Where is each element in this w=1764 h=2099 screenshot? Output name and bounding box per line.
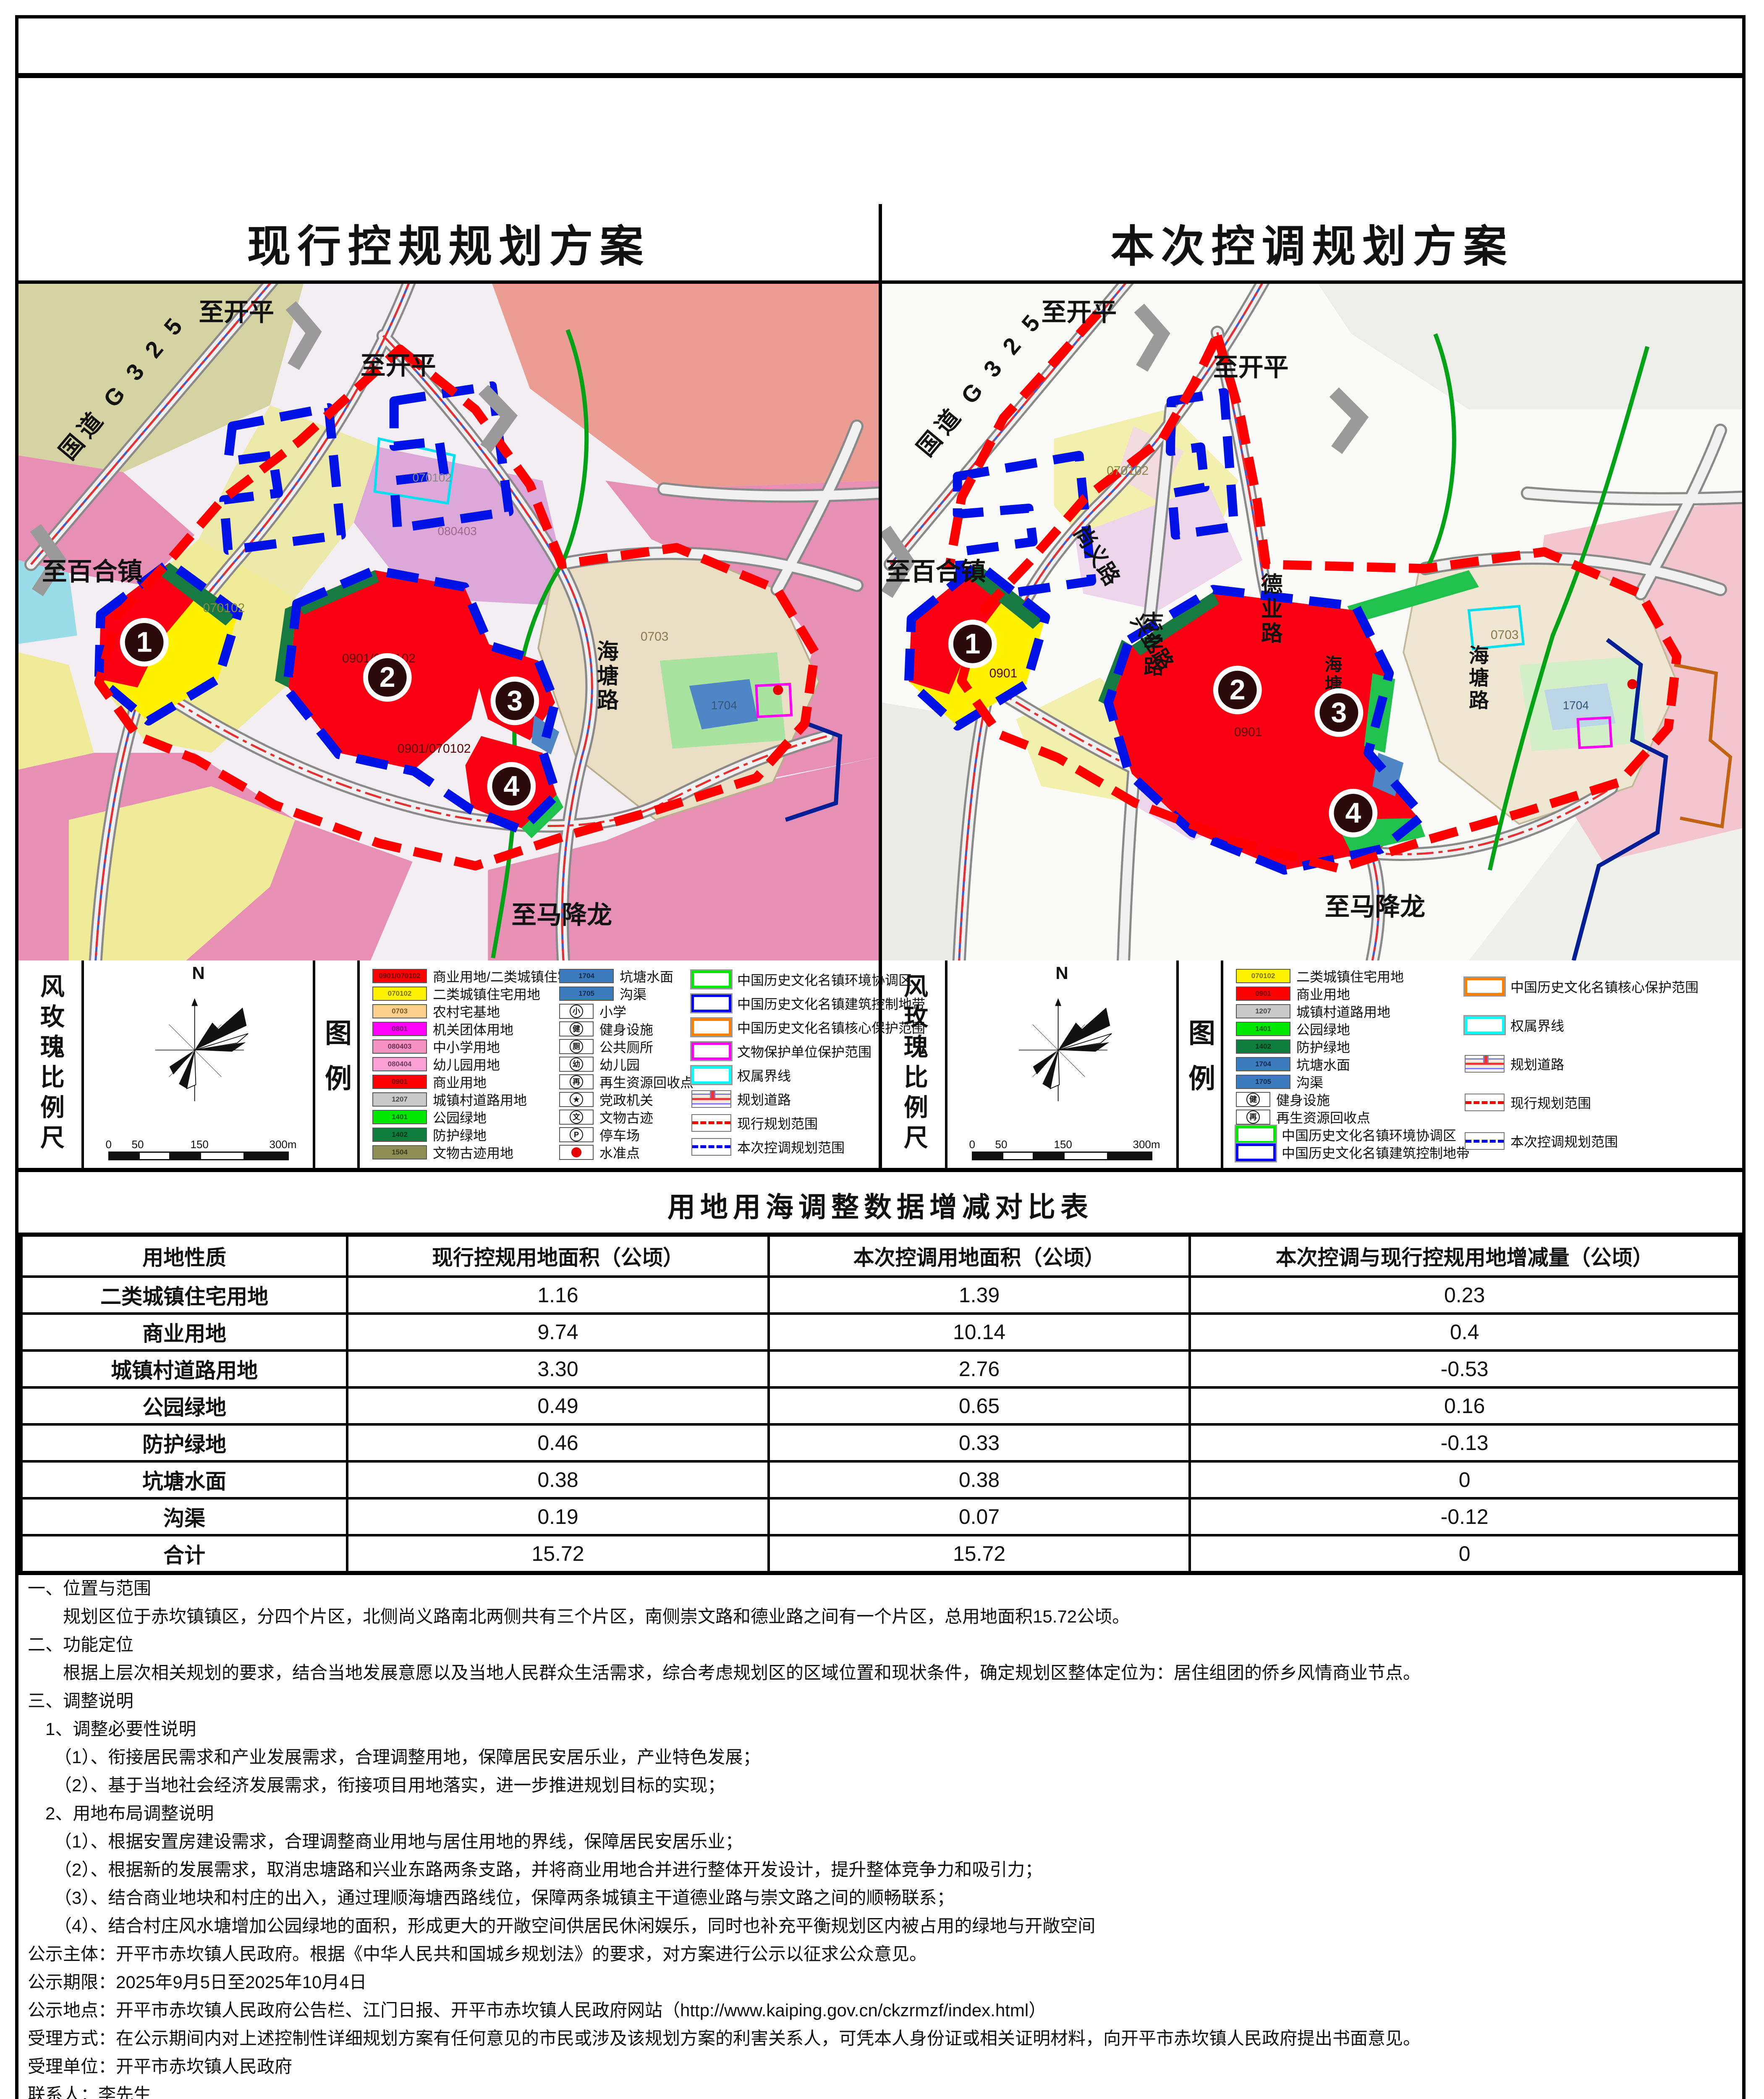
- planned-road-icon: [691, 1090, 731, 1108]
- legend-outline-swatch: [1465, 1016, 1505, 1034]
- table-row: 城镇村道路用地3.302.76-0.53: [21, 1350, 1740, 1387]
- map-label: 070102: [1107, 464, 1149, 478]
- legend-code: 0901: [1255, 989, 1271, 998]
- legend-item-label: 文物古迹用地: [433, 1143, 513, 1162]
- note-line: （2）、基于当地社会经济发展需求，衔接项目用地落实，进一步推进规划目标的实现；: [28, 1771, 1733, 1799]
- legend-code: 1704: [1255, 1060, 1271, 1068]
- legend-item: 1704坑塘水面: [1236, 1055, 1465, 1073]
- legend-swatch-0901: 0901: [372, 1075, 427, 1089]
- legend-item: 1402防护绿地: [1236, 1038, 1465, 1055]
- legend-item: P停车场: [559, 1126, 691, 1144]
- table-row: 沟渠0.190.07-0.12: [21, 1498, 1740, 1535]
- north-label: N: [1055, 963, 1068, 983]
- legend-item: 现行规划范围: [691, 1111, 901, 1135]
- legend-item-label: 小学: [599, 1002, 626, 1021]
- legend-item-label: 文物古迹: [599, 1107, 653, 1127]
- table-cell: 2.76: [769, 1350, 1190, 1387]
- legend-item: 再再生资源回收点: [559, 1073, 691, 1091]
- note-line: 根据上层次相关规划的要求，结合当地发展意愿以及当地人民群众生活需求，综合考虑规划…: [28, 1659, 1733, 1687]
- symbol-icon: 健: [1246, 1093, 1260, 1106]
- legend-item: 权属界线: [691, 1063, 901, 1087]
- legend-code: 0801: [392, 1025, 408, 1033]
- legend-item: 现行规划范围: [1465, 1083, 1742, 1122]
- table-header-cell: 现行控规用地面积（公顷）: [347, 1235, 769, 1277]
- legend-swatch-0901/070102: 0901/070102: [372, 969, 427, 983]
- symbol-icon: 再: [1246, 1110, 1260, 1124]
- legend-swatch-1402: 1402: [372, 1128, 427, 1142]
- legend-item-label: 二类城镇住宅用地: [1296, 966, 1404, 986]
- table-title: 用地用海调整数据增减对比表: [18, 1185, 1742, 1225]
- legend-outline-swatch: [1236, 1144, 1276, 1161]
- map-label: 至百合镇: [885, 557, 986, 586]
- map-marker-1: 1: [120, 618, 169, 667]
- svg-text:1: 1: [136, 626, 152, 658]
- note-line: （4）、结合村庄风水塘增加公园绿地的面积，形成更大的开敞空间供居民休闲娱乐，同时…: [28, 1912, 1733, 1940]
- map-current-plan: 至开平至开平国道 G 3 2 5至百合镇至马降龙海塘路0701020901/07…: [18, 284, 879, 961]
- scale-tick: 300m: [1133, 1138, 1160, 1151]
- legend-column: 中国历史文化名镇核心保护范围权属界线规划道路现行规划范围本次控调规划范围: [1465, 967, 1742, 1168]
- symbol-icon: 健: [570, 1022, 583, 1036]
- table-row: 防护绿地0.460.33-0.13: [21, 1424, 1740, 1461]
- legend-swatch-1704: 1704: [559, 969, 614, 983]
- legend-item-label: 中国历史文化名镇环境协调区: [1282, 1125, 1456, 1144]
- legend-outline-swatch: [1465, 978, 1505, 995]
- legend-item-label: 公园绿地: [433, 1107, 487, 1127]
- table-cell: 公园绿地: [21, 1387, 347, 1424]
- legend-swatch-070102: 070102: [372, 987, 427, 1001]
- legend-column: 0901/070102商业用地/二类城镇住宅用地070102二类城镇住宅用地07…: [372, 967, 559, 1168]
- note-line: 二、功能定位: [28, 1631, 1733, 1659]
- legend-item-label: 权属界线: [1510, 1015, 1564, 1035]
- legend-label-cell: 图例: [1179, 961, 1223, 1168]
- legend-item: 本次控调规划范围: [691, 1135, 901, 1159]
- scale-bar: 0 50 150 300m: [108, 1138, 289, 1160]
- legend-code: 070102: [388, 989, 412, 998]
- legend-item: 健健身设施: [559, 1020, 691, 1038]
- legend-item: 070102二类城镇住宅用地: [372, 985, 559, 1002]
- page-title: 开平市赤坎镇赤坎新区南部组团一期控制性详细规划: [18, 87, 1742, 150]
- map-label: 0703: [1491, 628, 1519, 642]
- legend-items-right: 070102二类城镇住宅用地0901商业用地1207城镇村道路用地1401公园绿…: [1223, 961, 1742, 1168]
- map-label: 海塘路: [1469, 645, 1489, 712]
- legend-code: 1401: [1255, 1025, 1271, 1033]
- legend-swatch-1401: 1401: [1236, 1022, 1290, 1036]
- legend-icon-党政机关: ★: [559, 1092, 594, 1107]
- legend-code: 1705: [1255, 1078, 1271, 1086]
- wind-rose-scale-label: 风玫瑰比例尺: [896, 974, 931, 1155]
- wind-rose-cell: N 0 50: [84, 961, 315, 1168]
- legend-item: 080403中小学用地: [372, 1038, 559, 1055]
- legend-column: 1704坑塘水面1705沟渠小小学健健身设施厕公共厕所幼幼儿园再再生资源回收点★…: [559, 967, 691, 1168]
- legend-code: 1504: [392, 1148, 408, 1157]
- legend-dash-swatch: [1465, 1132, 1505, 1150]
- legend-item-label: 商业用地: [1296, 984, 1350, 1003]
- legend-outline-swatch: [691, 995, 731, 1012]
- legend-item: 中国历史文化名镇建筑控制地带: [691, 991, 901, 1015]
- legend-icon-公共厕所: 厕: [559, 1039, 594, 1054]
- table-cell: 0: [1190, 1461, 1740, 1498]
- svg-text:3: 3: [507, 685, 523, 717]
- page-subtitle: ——局部（沙地村周边地块）调整: [18, 154, 1742, 202]
- scale-bar-segments: [108, 1152, 289, 1160]
- legend-item: 1705沟渠: [559, 985, 691, 1002]
- legend-icon-再生资源回收点: 再: [1236, 1110, 1270, 1125]
- legend-item: 文文物古迹: [559, 1108, 691, 1126]
- map-adjusted-plan: 至开平至开平国道 G 3 2 5至百合镇至马降龙尚义路志学路德业路兴业路海塘西路…: [882, 284, 1742, 961]
- note-line: 三、调整说明: [28, 1687, 1733, 1715]
- symbol-icon: 厕: [570, 1040, 583, 1053]
- table-row: 公园绿地0.490.650.16: [21, 1387, 1740, 1424]
- table-row: 坑塘水面0.380.380: [21, 1461, 1740, 1498]
- table-cell: 0.65: [769, 1387, 1190, 1424]
- legend-item-label: 权属界线: [737, 1065, 791, 1085]
- note-line: 2、用地布局调整说明: [28, 1799, 1733, 1827]
- legend-item: 规划道路: [691, 1087, 901, 1111]
- map-label: 至马降龙: [1324, 892, 1425, 921]
- svg-text:1: 1: [965, 628, 981, 660]
- legend-swatch-1401: 1401: [372, 1110, 427, 1124]
- legend-code: 1402: [392, 1131, 408, 1139]
- wind-rose: [129, 983, 268, 1109]
- symbol-icon: 幼: [570, 1057, 583, 1071]
- table-header-cell: 用地性质: [21, 1235, 347, 1277]
- legend-item-label: 再生资源回收点: [1276, 1107, 1370, 1127]
- symbol-icon: ★: [570, 1093, 583, 1106]
- legend-item-label: 幼儿园用地: [433, 1055, 500, 1074]
- dash-line: [692, 1145, 730, 1148]
- legend-item: ★党政机关: [559, 1091, 691, 1108]
- legend-item: 0901商业用地: [1236, 985, 1465, 1002]
- legend-swatch-1402: 1402: [1236, 1039, 1290, 1054]
- scale-tick: 50: [132, 1138, 144, 1151]
- legend-item: 1207城镇村道路用地: [1236, 1002, 1465, 1020]
- legend-item-label: 文物保护单位保护范围: [737, 1042, 872, 1061]
- poster-sheet: 开平市赤坎镇赤坎新区南部组团一期控制性详细规划 ——局部（沙地村周边地块）调整 …: [15, 15, 1746, 2099]
- legend-item: 权属界线: [1465, 1006, 1742, 1044]
- legend-item: 0801机关团体用地: [372, 1020, 559, 1038]
- road-stub: [710, 1091, 715, 1098]
- symbol-icon: 文: [570, 1110, 583, 1124]
- legend-item-label: 现行规划范围: [737, 1113, 818, 1133]
- map-panel-adjusted: 至开平至开平国道 G 3 2 5至百合镇至马降龙尚义路志学路德业路兴业路海塘西路…: [882, 284, 1742, 961]
- wind-rose-scale-label: 风玫瑰比例尺: [32, 974, 68, 1155]
- legend-item-label: 中小学用地: [433, 1037, 500, 1056]
- note-line: 受理方式：在公示期间内对上述控制性详细规划方案有任何意见的市民或涉及该规划方案的…: [28, 2024, 1733, 2052]
- legend-item: 1207城镇村道路用地: [372, 1091, 559, 1108]
- wind-rose-scale-label-cell: 风玫瑰比例尺: [18, 961, 84, 1168]
- map-label: 070102: [203, 601, 245, 615]
- scale-bar-segments: [972, 1152, 1152, 1160]
- svg-text:4: 4: [1345, 797, 1361, 829]
- map-marker-3: 3: [490, 677, 539, 725]
- map-label: 海塘路: [597, 639, 619, 712]
- note-line: 公示主体：开平市赤坎镇人民政府。根据《中华人民共和国城乡规划法》的要求，对方案进…: [28, 1940, 1733, 1968]
- legend-swatch-1704: 1704: [1236, 1057, 1290, 1071]
- note-line: 公示地点：开平市赤坎镇人民政府公告栏、江门日报、开平市赤坎镇人民政府网站（htt…: [28, 1996, 1733, 2024]
- legend-swatch-1705: 1705: [559, 987, 614, 1001]
- legend-swatch-0801: 0801: [372, 1022, 427, 1036]
- svg-text:3: 3: [1331, 697, 1347, 728]
- legend-item-label: 本次控调规划范围: [1510, 1131, 1618, 1151]
- scale-ticks: 0 50 150 300m: [108, 1138, 289, 1152]
- table-cell: 0.16: [1190, 1387, 1740, 1424]
- map-label: 070102: [413, 471, 452, 484]
- legend-icon-健身设施: 健: [1236, 1092, 1270, 1107]
- legend-item-label: 现行规划范围: [1510, 1093, 1591, 1112]
- legend-item-label: 中国历史文化名镇建筑控制地带: [1282, 1143, 1470, 1162]
- legend-item: 0901/070102商业用地/二类城镇住宅用地: [372, 967, 559, 985]
- table-cell: 0.33: [769, 1424, 1190, 1461]
- legend-item-label: 沟渠: [1296, 1072, 1323, 1091]
- map-label: 0901: [1234, 725, 1262, 739]
- legend-swatch-070102: 070102: [1236, 969, 1290, 983]
- legend-swatch-080403: 080403: [372, 1039, 427, 1054]
- legend-outline-swatch: [691, 971, 731, 988]
- panel-title-current: 现行控规规划方案: [18, 204, 882, 280]
- legend-dash-swatch: [691, 1138, 731, 1156]
- legend-item: 中国历史文化名镇核心保护范围: [1465, 967, 1742, 1006]
- symbol-icon: 小: [570, 1005, 583, 1018]
- legend-code: 1705: [578, 989, 594, 998]
- note-line: 受理单位：开平市赤坎镇人民政府: [28, 2052, 1733, 2081]
- legend-code: 080403: [388, 1042, 412, 1051]
- legend-item: 文物保护单位保护范围: [691, 1039, 901, 1063]
- table-cell: 0.38: [347, 1461, 769, 1498]
- road-stub: [1483, 1056, 1489, 1063]
- legend-dash-swatch: [1465, 1094, 1505, 1111]
- legend-block-right: 风玫瑰比例尺 N: [882, 961, 1742, 1168]
- scale-tick: 150: [1054, 1138, 1072, 1151]
- legend-icon-健身设施: 健: [559, 1021, 594, 1036]
- legend-outline-swatch: [691, 1066, 731, 1084]
- legend-swatch-0901: 0901: [1236, 987, 1290, 1001]
- legend-item: 中国历史文化名镇建筑控制地带: [1236, 1144, 1465, 1161]
- table-cell: 商业用地: [21, 1314, 347, 1350]
- legend-item-label: 机关团体用地: [433, 1019, 513, 1039]
- legend-outline-swatch: [1236, 1126, 1276, 1144]
- legend-item: 1401公园绿地: [372, 1108, 559, 1126]
- scale-bar: 0 50 150 300m: [972, 1138, 1152, 1160]
- legend-code: 1402: [1255, 1042, 1271, 1051]
- legend-item-label: 城镇村道路用地: [1296, 1002, 1390, 1021]
- legend-outline-swatch: [691, 1042, 731, 1060]
- map-panel-current: 至开平至开平国道 G 3 2 5至百合镇至马降龙海塘路0701020901/07…: [18, 284, 882, 961]
- table-cell: 15.72: [769, 1535, 1190, 1573]
- legend-item: 规划道路: [1465, 1044, 1742, 1083]
- map-label: 至开平: [1213, 353, 1289, 381]
- legend-item-label: 二类城镇住宅用地: [433, 984, 540, 1003]
- legend-icon-停车场: P: [559, 1127, 594, 1142]
- table-cell: 0.49: [347, 1387, 769, 1424]
- benchmark-point: [1627, 679, 1637, 689]
- legend-item: 1504文物古迹用地: [372, 1144, 559, 1161]
- legend-code: 1704: [578, 972, 594, 980]
- table-row: 商业用地9.7410.140.4: [21, 1314, 1740, 1350]
- note-line: （3）、结合商业地块和村庄的出入，通过理顺海塘西路线位，保障两条城镇主干道德业路…: [28, 1884, 1733, 1912]
- legend-row: 风玫瑰比例尺 N: [18, 961, 1742, 1172]
- table-row: 二类城镇住宅用地1.161.390.23: [21, 1277, 1740, 1314]
- scale-tick: 50: [995, 1138, 1008, 1151]
- red-dot-icon: [571, 1147, 581, 1157]
- legend-item-label: 坑塘水面: [1296, 1055, 1350, 1074]
- table-cell: 0: [1190, 1535, 1740, 1573]
- table-cell: 1.39: [769, 1277, 1190, 1314]
- legend-item: 本次控调规划范围: [1465, 1122, 1742, 1160]
- legend-outline-swatch: [691, 1018, 731, 1036]
- map-label: 080403: [438, 525, 477, 538]
- legend-item: 中国历史文化名镇环境协调区: [1236, 1126, 1465, 1144]
- legend-item: 中国历史文化名镇核心保护范围: [691, 1015, 901, 1039]
- map-label: 0901: [989, 667, 1018, 680]
- legend-code: 1401: [392, 1113, 408, 1121]
- note-line: （1）、衔接居民需求和产业发展需求，合理调整用地，保障居民安居乐业，产业特色发展…: [28, 1743, 1733, 1771]
- legend-items-left: 0901/070102商业用地/二类城镇住宅用地070102二类城镇住宅用地07…: [360, 961, 879, 1168]
- table-cell: 坑塘水面: [21, 1461, 347, 1498]
- legend-code: 1207: [1255, 1007, 1271, 1015]
- legend-item-label: 防护绿地: [1296, 1037, 1350, 1056]
- scale-tick: 0: [106, 1138, 112, 1151]
- table-wrap: 用地性质现行控规用地面积（公顷）本次控调用地面积（公顷）本次控调与现行控规用地增…: [18, 1233, 1742, 1575]
- svg-text:2: 2: [379, 662, 395, 693]
- table-cell: 10.14: [769, 1314, 1190, 1350]
- legend-item-label: 城镇村道路用地: [433, 1090, 527, 1109]
- legend-icon-文物古迹: 文: [559, 1110, 594, 1125]
- legend-item: 再再生资源回收点: [1236, 1108, 1465, 1126]
- map-marker-4: 4: [1329, 789, 1377, 838]
- note-line: 联系人：李先生: [28, 2081, 1733, 2099]
- map-label: 至开平: [361, 351, 436, 379]
- legend-dash-swatch: [691, 1114, 731, 1132]
- scale-tick: 150: [191, 1138, 209, 1151]
- legend-item-label: 农村宅基地: [433, 1002, 500, 1021]
- symbol-icon: P: [570, 1128, 583, 1141]
- table-cell: 0.19: [347, 1498, 769, 1535]
- table-cell: -0.53: [1190, 1350, 1740, 1387]
- legend-item: 1402防护绿地: [372, 1126, 559, 1144]
- legend-item-label: 防护绿地: [433, 1125, 487, 1144]
- legend-item-label: 健身设施: [599, 1019, 653, 1039]
- map-marker-4: 4: [487, 762, 536, 811]
- dash-line: [692, 1121, 730, 1124]
- table-row: 合计15.7215.720: [21, 1535, 1740, 1573]
- legend-label: 图例: [317, 1019, 356, 1110]
- legend-item: 健健身设施: [1236, 1091, 1465, 1108]
- map-marker-2: 2: [1213, 666, 1262, 714]
- table-cell: 0.38: [769, 1461, 1190, 1498]
- legend-block-left: 风玫瑰比例尺 N: [18, 961, 882, 1168]
- legend-item-label: 中国历史文化名镇核心保护范围: [1510, 977, 1699, 996]
- note-line: 公示期限：2025年9月5日至2025年10月4日: [28, 1968, 1733, 1996]
- legend-item: 小小学: [559, 1002, 691, 1020]
- legend-code: 0901/070102: [379, 972, 420, 980]
- scale-tick: 0: [969, 1138, 975, 1151]
- legend-item: 1705沟渠: [1236, 1073, 1465, 1091]
- note-line: （1）、根据安置房建设需求，合理调整商业用地与居住用地的界线，保障居民安居乐业；: [28, 1827, 1733, 1856]
- legend-item-label: 沟渠: [620, 984, 646, 1003]
- map-label: 0703: [641, 630, 669, 644]
- svg-text:4: 4: [503, 771, 519, 802]
- benchmark-point: [773, 685, 783, 695]
- legend-item: 080404幼儿园用地: [372, 1055, 559, 1073]
- comparison-table: 用地性质现行控规用地面积（公顷）本次控调用地面积（公顷）本次控调与现行控规用地增…: [18, 1233, 1742, 1575]
- map-label: 至开平: [1041, 298, 1117, 326]
- table-cell: -0.13: [1190, 1424, 1740, 1461]
- dash-line: [1466, 1140, 1504, 1143]
- legend-label-cell: 图例: [315, 961, 360, 1168]
- map-marker-2: 2: [363, 653, 412, 702]
- map-row: 至开平至开平国道 G 3 2 5至百合镇至马降龙海塘路0701020901/07…: [18, 284, 1742, 961]
- legend-item: 0901商业用地: [372, 1073, 559, 1091]
- legend-item-label: 公共厕所: [599, 1037, 653, 1056]
- table-header-cell: 本次控调用地面积（公顷）: [769, 1235, 1190, 1277]
- map-label: 1704: [711, 699, 737, 712]
- legend-item: 1401公园绿地: [1236, 1020, 1465, 1038]
- legend-benchmark-icon: [559, 1145, 594, 1160]
- legend-item-label: 商业用地: [433, 1072, 487, 1091]
- map-marker-1: 1: [948, 620, 997, 668]
- legend-column: 中国历史文化名镇环境协调区中国历史文化名镇建筑控制地带中国历史文化名镇核心保护范…: [691, 967, 901, 1168]
- table-cell: 15.72: [347, 1535, 769, 1573]
- legend-item-label: 公园绿地: [1296, 1019, 1350, 1039]
- svg-text:2: 2: [1230, 674, 1246, 706]
- legend-item-label: 本次控调规划范围: [737, 1137, 845, 1157]
- legend-item-label: 党政机关: [599, 1090, 653, 1109]
- map-marker-3: 3: [1314, 688, 1363, 737]
- legend-item: 1704坑塘水面: [559, 967, 691, 985]
- legend-swatch-0703: 0703: [372, 1004, 427, 1018]
- legend-item: 中国历史文化名镇环境协调区: [691, 967, 901, 991]
- legend-item: 0703农村宅基地: [372, 1002, 559, 1020]
- legend-item: 厕公共厕所: [559, 1038, 691, 1055]
- symbol-icon: 再: [570, 1075, 583, 1089]
- legend-swatch-1207: 1207: [1236, 1004, 1290, 1018]
- legend-item-label: 幼儿园: [599, 1055, 640, 1074]
- legend-item-label: 水准点: [599, 1143, 640, 1162]
- map-label: 至马降龙: [511, 901, 612, 929]
- planned-road-icon: [1465, 1055, 1505, 1073]
- legend-icon-再生资源回收点: 再: [559, 1074, 594, 1089]
- wind-rose: [993, 983, 1131, 1109]
- legend-item-label: 坑塘水面: [620, 966, 673, 986]
- legend-code: 080404: [388, 1060, 412, 1068]
- legend-swatch-1504: 1504: [372, 1145, 427, 1159]
- map-label: 德业路: [1261, 572, 1283, 645]
- table-cell: 城镇村道路用地: [21, 1350, 347, 1387]
- legend-item-label: 规划道路: [1510, 1054, 1564, 1073]
- note-line: 规划区位于赤坎镇镇区，分四个片区，北侧尚义路南北两侧共有三个片区，南侧崇文路和德…: [28, 1602, 1733, 1631]
- map-label: 至开平: [199, 298, 274, 326]
- table-cell: 0.07: [769, 1498, 1190, 1535]
- legend-item: 水准点: [559, 1144, 691, 1161]
- table-cell: 二类城镇住宅用地: [21, 1277, 347, 1314]
- north-label: N: [192, 963, 204, 983]
- legend-item: 070102二类城镇住宅用地: [1236, 967, 1465, 985]
- table-cell: 3.30: [347, 1350, 769, 1387]
- table-cell: 0.23: [1190, 1277, 1740, 1314]
- legend-item-label: 规划道路: [737, 1089, 791, 1109]
- wind-rose-cell: N 0 50: [947, 961, 1179, 1168]
- table-cell: 0.4: [1190, 1314, 1740, 1350]
- legend-code: 070102: [1251, 972, 1275, 980]
- legend-item-label: 再生资源回收点: [599, 1072, 694, 1091]
- note-line: 1、调整必要性说明: [28, 1715, 1733, 1743]
- dash-line: [1466, 1101, 1504, 1104]
- title-banner: 开平市赤坎镇赤坎新区南部组团一期控制性详细规划 ——局部（沙地村周边地块）调整: [18, 73, 1742, 204]
- table-cell: 合计: [21, 1535, 347, 1573]
- wind-rose-scale-label-cell: 风玫瑰比例尺: [882, 961, 947, 1168]
- table-cell: 防护绿地: [21, 1424, 347, 1461]
- map-label: 1704: [1563, 699, 1589, 712]
